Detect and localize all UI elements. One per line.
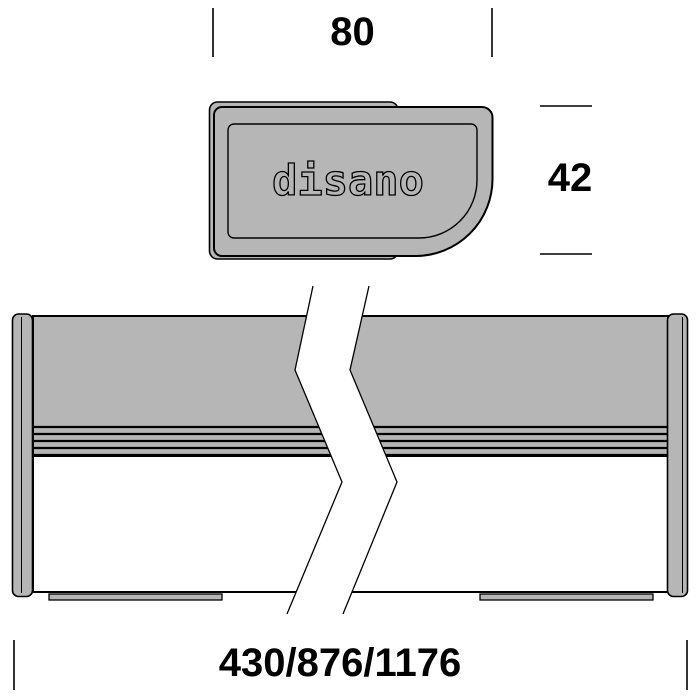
end-cap-right (668, 314, 688, 597)
mounting-foot-left (49, 594, 222, 600)
drawing-canvas: 80 42 430/876/1176 disano (0, 0, 700, 700)
dimension-width-label: 80 (213, 7, 492, 57)
disano-logo: disano (248, 154, 448, 202)
drawing-svg (0, 0, 700, 700)
side-view-drawing (13, 286, 688, 614)
dimension-height-label: 42 (531, 153, 609, 203)
end-cap-left (13, 314, 33, 597)
mounting-foot-right (480, 594, 653, 600)
dimension-length-label: 430/876/1176 (100, 637, 580, 689)
